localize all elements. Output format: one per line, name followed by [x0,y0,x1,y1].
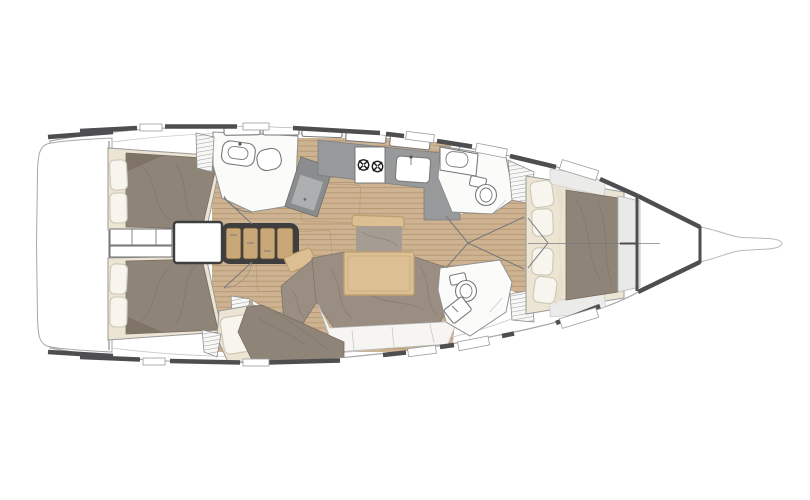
deck-hatch [140,124,162,131]
companionway-entry [174,222,222,263]
deck-hatch [243,359,269,366]
bench-backrest [352,215,404,228]
between-beds-cabinet [110,229,172,257]
pillow [531,208,553,236]
pillow [529,180,554,209]
pillow [109,264,128,295]
pillow [532,276,557,305]
bowsprit [700,227,782,262]
wardrobe-hatched [196,133,214,172]
saloon-table [344,252,414,295]
stove [355,147,385,183]
aft-cabin-stbd [108,256,222,340]
pillow [531,247,553,275]
swim-platform [37,138,113,352]
companionway [174,222,299,264]
pillow [109,160,128,191]
galley-sink [395,156,431,183]
yacht-floorplan-canvas [0,0,810,500]
bench-cushion [356,226,402,253]
deck-hatch [143,358,165,365]
faucet [238,142,241,145]
deck-hatch [243,123,269,130]
pillow [110,193,128,223]
pillow [110,297,128,327]
island-berth-mattress [566,190,618,300]
saloon-bench [352,215,404,253]
yacht-floorplan [0,0,810,500]
interior [108,123,660,362]
owners-cabin [526,169,660,317]
